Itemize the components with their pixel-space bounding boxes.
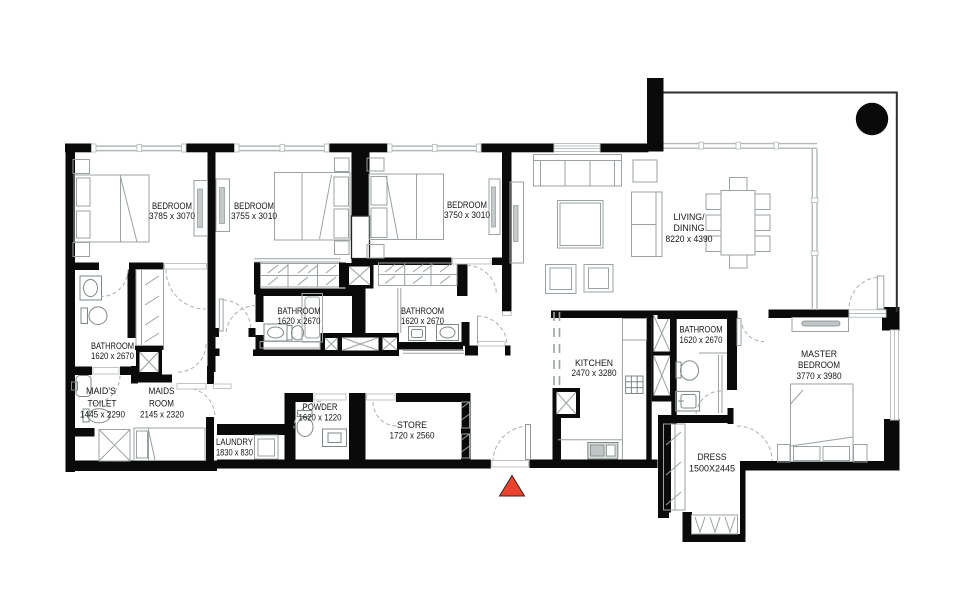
svg-text:MASTER: MASTER: [801, 349, 837, 359]
svg-text:1500X2445: 1500X2445: [689, 464, 735, 474]
svg-text:3755 x 3010: 3755 x 3010: [231, 211, 277, 221]
svg-text:1620 x 1220: 1620 x 1220: [299, 413, 342, 423]
svg-text:1620 x 2670: 1620 x 2670: [680, 335, 723, 345]
svg-text:POWDER: POWDER: [303, 402, 338, 412]
svg-text:2470 x 3280: 2470 x 3280: [572, 368, 617, 378]
svg-text:DINING: DINING: [674, 223, 705, 233]
svg-text:STORE: STORE: [397, 420, 427, 430]
svg-text:TOILET: TOILET: [88, 399, 117, 409]
svg-text:3770 x 3980: 3770 x 3980: [797, 371, 842, 381]
svg-text:KITCHEN: KITCHEN: [575, 358, 613, 368]
svg-text:DRESS: DRESS: [698, 452, 727, 462]
svg-text:1830 x 830: 1830 x 830: [216, 448, 253, 458]
svg-text:BATHROOM: BATHROOM: [91, 341, 134, 351]
svg-text:3785 x 3070: 3785 x 3070: [149, 211, 195, 221]
svg-text:LIVING/: LIVING/: [674, 212, 705, 222]
svg-text:BEDROOM: BEDROOM: [234, 201, 274, 211]
svg-text:1620 x 2670: 1620 x 2670: [91, 351, 134, 361]
svg-text:BEDROOM: BEDROOM: [447, 200, 487, 210]
svg-text:MAID'S: MAID'S: [86, 386, 116, 396]
svg-text:BEDROOM: BEDROOM: [152, 201, 192, 211]
svg-text:2145 x 2320: 2145 x 2320: [140, 409, 184, 419]
svg-text:8220 x 4390: 8220 x 4390: [666, 234, 713, 244]
svg-text:1445 x 2290: 1445 x 2290: [80, 409, 125, 419]
svg-text:1620 x 2670: 1620 x 2670: [278, 316, 321, 326]
svg-text:3750 x 3010: 3750 x 3010: [444, 210, 490, 220]
svg-text:ROOM: ROOM: [149, 399, 174, 409]
svg-text:BATHROOM: BATHROOM: [278, 306, 321, 316]
svg-text:MAIDS: MAIDS: [149, 386, 175, 396]
svg-text:LAUNDRY: LAUNDRY: [216, 437, 253, 447]
svg-text:BATHROOM: BATHROOM: [401, 306, 444, 316]
svg-text:BEDROOM: BEDROOM: [798, 360, 840, 370]
svg-text:BATHROOM: BATHROOM: [680, 325, 723, 335]
svg-text:1620 x 2670: 1620 x 2670: [401, 316, 444, 326]
svg-text:1720 x 2560: 1720 x 2560: [390, 431, 435, 441]
